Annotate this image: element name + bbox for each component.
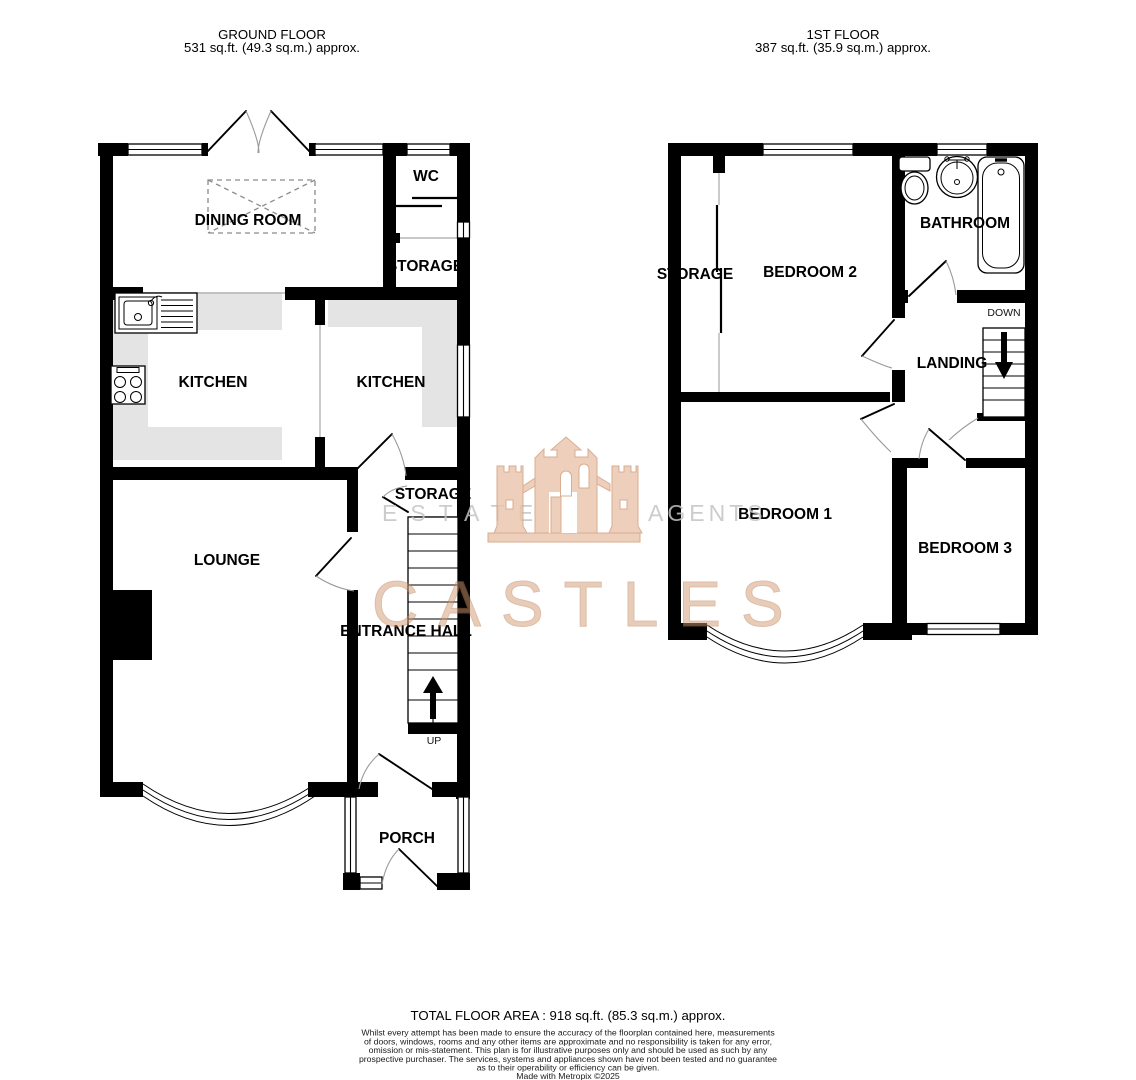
metropix-credit-text: Made with Metropix ©2025 — [516, 1071, 620, 1080]
dining-window-left — [128, 144, 202, 155]
bathroom-door — [909, 261, 956, 296]
room-label-wc: WC — [413, 168, 439, 185]
room-label-bedroom3: BEDROOM 3 — [918, 540, 1012, 557]
floorplan-canvas: GROUND FLOOR 531 sq.ft. (49.3 sq.m.) app… — [0, 0, 1136, 1080]
room-label-lounge: LOUNGE — [194, 552, 260, 569]
first-floor-area-text: 387 sq.ft. (35.9 sq.m.) approx. — [755, 40, 931, 55]
room-label-dining-room: DINING ROOM — [195, 212, 302, 229]
first-floor-title: 1ST FLOOR 387 sq.ft. (35.9 sq.m.) approx… — [755, 27, 931, 55]
basin-icon — [937, 157, 978, 198]
kitchen-sink-icon — [115, 293, 197, 333]
storage-side-window — [458, 222, 470, 238]
porch-window-left — [345, 797, 356, 873]
wc-sliding-door — [387, 198, 457, 206]
room-label-storage-upper: STORAGE — [387, 258, 463, 275]
footer: TOTAL FLOOR AREA : 918 sq.ft. (85.3 sq.m… — [359, 1008, 777, 1080]
bedroom2-window — [763, 144, 853, 155]
porch-window-front — [360, 877, 382, 889]
front-door — [382, 849, 437, 886]
wc-window — [407, 144, 450, 155]
watermark-brand-text: CASTLES — [372, 568, 804, 640]
lounge-door — [316, 538, 354, 591]
french-doors — [207, 111, 310, 153]
room-label-landing: LANDING — [917, 355, 988, 372]
room-label-kitchen-left: KITCHEN — [179, 374, 248, 391]
ground-floor-area-text: 531 sq.ft. (49.3 sq.m.) approx. — [184, 40, 360, 55]
bedroom1-door — [861, 404, 894, 452]
kitchen-side-window — [458, 345, 470, 417]
chimney-breast — [100, 590, 152, 660]
floorplan-page: GROUND FLOOR 531 sq.ft. (49.3 sq.m.) app… — [0, 0, 1136, 1080]
stair-winder-curve — [949, 418, 978, 440]
label-up: UP — [427, 735, 442, 747]
watermark-agents-text: AGENTS — [648, 500, 767, 526]
porch-window-right — [458, 797, 469, 873]
dining-window-right — [315, 144, 383, 155]
bedroom3-door — [919, 429, 965, 460]
bedroom2-door — [862, 320, 894, 368]
room-label-bedroom2: BEDROOM 2 — [763, 264, 857, 281]
ground-floor-title: GROUND FLOOR 531 sq.ft. (49.3 sq.m.) app… — [184, 27, 360, 55]
toilet-icon — [899, 157, 930, 204]
kitchen-hall-door — [352, 434, 406, 476]
stairs-first — [983, 328, 1025, 417]
hob-icon — [111, 366, 145, 404]
watermark-castle-icon — [488, 437, 642, 542]
total-floor-area-text: TOTAL FLOOR AREA : 918 sq.ft. (85.3 sq.m… — [411, 1008, 726, 1023]
lounge-bay-window — [143, 784, 315, 826]
label-down: DOWN — [987, 307, 1020, 319]
bathroom-window — [937, 144, 987, 155]
bedroom3-window — [927, 624, 1000, 635]
room-label-porch: PORCH — [379, 830, 435, 847]
room-label-kitchen-right: KITCHEN — [357, 374, 426, 391]
room-label-bathroom: BATHROOM — [920, 215, 1010, 232]
